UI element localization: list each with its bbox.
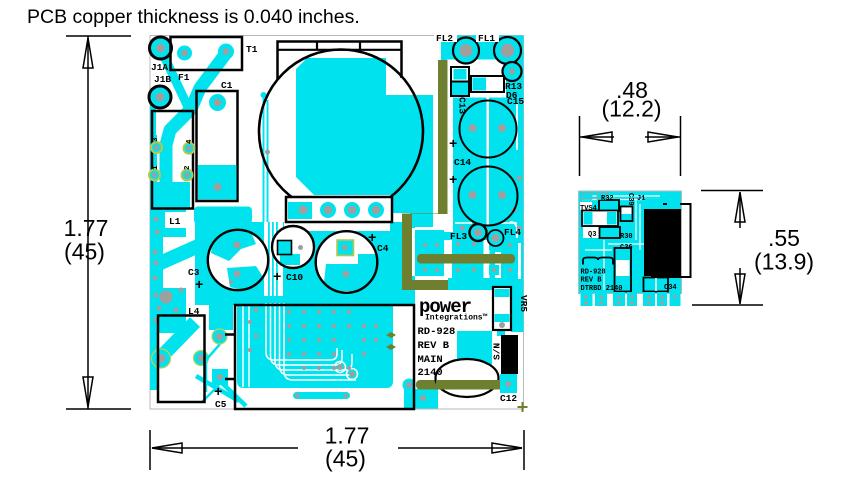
svg-text:Integrations™: Integrations™ [425,314,488,323]
svg-text:F1: F1 [178,72,190,83]
svg-text:R32: R32 [601,195,614,203]
svg-text:RD-928: RD-928 [581,269,606,277]
svg-text:REV B: REV B [418,340,450,352]
svg-text:J1A: J1A [151,62,168,73]
svg-text:REV B: REV B [581,277,603,285]
svg-text:MAIN: MAIN [418,354,443,366]
svg-text:DTRBD 2140: DTRBD 2140 [581,285,623,293]
svg-text:3: 3 [152,137,160,142]
svg-text:TVS4: TVS4 [580,205,597,213]
svg-text:FL3: FL3 [450,231,467,242]
svg-text:+: + [449,173,457,189]
svg-text:+: + [449,137,457,153]
svg-text:2: 2 [184,165,192,170]
svg-text:+: + [273,270,281,286]
svg-text:J1: J1 [637,195,645,203]
svg-text:(45): (45) [64,239,105,265]
svg-text:T1: T1 [246,44,258,55]
svg-text:+: + [368,231,376,247]
svg-text:C10: C10 [286,272,303,283]
svg-text:(12.2): (12.2) [601,96,661,122]
svg-text:C1: C1 [221,80,233,91]
svg-text:FL1: FL1 [478,33,495,44]
svg-text:VR5: VR5 [518,295,529,312]
svg-text:R30: R30 [620,233,633,241]
svg-text:.55: .55 [768,225,800,251]
svg-text:+: + [214,385,222,401]
svg-text:FL2: FL2 [436,33,453,44]
svg-text:C12: C12 [500,393,517,404]
svg-text:C39: C39 [626,193,634,206]
svg-text:Q3: Q3 [588,231,596,239]
svg-text:S/N: S/N [492,343,503,360]
svg-text:1.77: 1.77 [64,215,109,241]
svg-text:C3: C3 [188,267,200,278]
svg-text:L4: L4 [188,306,200,317]
svg-text:2140: 2140 [418,367,443,379]
svg-text:C4: C4 [377,243,389,254]
svg-text:C34: C34 [664,284,677,292]
svg-text:C13: C13 [457,97,468,114]
svg-text:1: 1 [152,165,160,170]
svg-text:FL4: FL4 [504,227,521,238]
svg-text:RD-928: RD-928 [418,326,456,338]
svg-text:C36: C36 [620,244,633,252]
svg-text:(45): (45) [325,446,366,472]
svg-text:L1: L1 [169,216,181,227]
svg-text:+: + [195,278,203,294]
svg-text:4: 4 [186,139,194,144]
svg-text:C15: C15 [507,96,524,107]
svg-text:J1B: J1B [154,74,171,85]
svg-text:PCB copper thickness is 0.040: PCB copper thickness is 0.040 inches. [27,6,360,28]
svg-text:C14: C14 [454,157,471,168]
svg-text:(13.9): (13.9) [754,249,814,275]
